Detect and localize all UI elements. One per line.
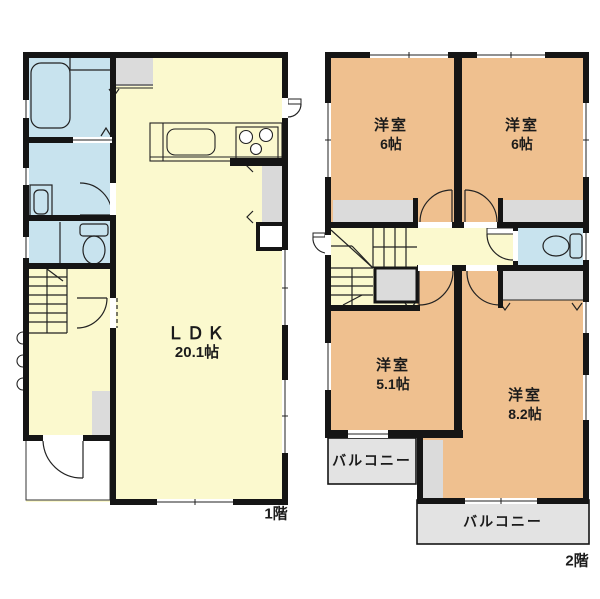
entrance-porch (26, 438, 110, 500)
closet-room-se (503, 271, 583, 300)
floor1-plan (17, 52, 301, 505)
back-door-arc (288, 99, 301, 117)
floor2-label: 2階 (565, 553, 588, 572)
closet-room-nw (333, 200, 413, 222)
balcony-south-label: バルコニー (463, 513, 543, 531)
ldk-name: ＬＤＫ (167, 323, 227, 344)
floor-plan-canvas (0, 0, 600, 599)
exterior-vent-bumps (17, 332, 23, 390)
room-ne-size: 6帖 (505, 136, 539, 154)
stair-window-swing (313, 233, 325, 253)
kitchen-counter (150, 123, 282, 161)
ldk-size: 20.1帖 (167, 344, 227, 363)
storage-box (258, 224, 284, 249)
floorplan-stage: ＬＤＫ 20.1帖 1階 洋室 6帖 洋室 6帖 洋室 5.1帖 洋室 8.2帖… (0, 0, 600, 599)
closet-strip-room-se (423, 440, 443, 498)
shoe-closet (92, 391, 110, 435)
room-nw-label: 洋室 6帖 (374, 117, 408, 153)
floor1-label: 1階 (264, 506, 287, 525)
closet-room-ne (503, 200, 583, 222)
floor2-plan (313, 52, 589, 544)
room-ne-label: 洋室 6帖 (505, 117, 539, 153)
room-nw-size: 6帖 (374, 136, 408, 154)
room-nw-name: 洋室 (374, 117, 408, 136)
room-sw-name: 洋室 (376, 357, 410, 376)
stair-closet-2f (375, 268, 417, 302)
balcony-west-label: バルコニー (332, 452, 412, 470)
room-se-size: 8.2帖 (508, 406, 542, 424)
pantry-closet (262, 166, 283, 223)
room-sw-label: 洋室 5.1帖 (376, 357, 410, 393)
room-se-label: 洋室 8.2帖 (508, 387, 542, 423)
room-sw-size: 5.1帖 (376, 376, 410, 394)
room-ne-name: 洋室 (505, 117, 539, 136)
room-se-name: 洋室 (508, 387, 542, 406)
refrigerator-nook (113, 57, 153, 86)
ldk-label: ＬＤＫ 20.1帖 (167, 323, 227, 363)
room-8-2-lower (420, 438, 586, 501)
